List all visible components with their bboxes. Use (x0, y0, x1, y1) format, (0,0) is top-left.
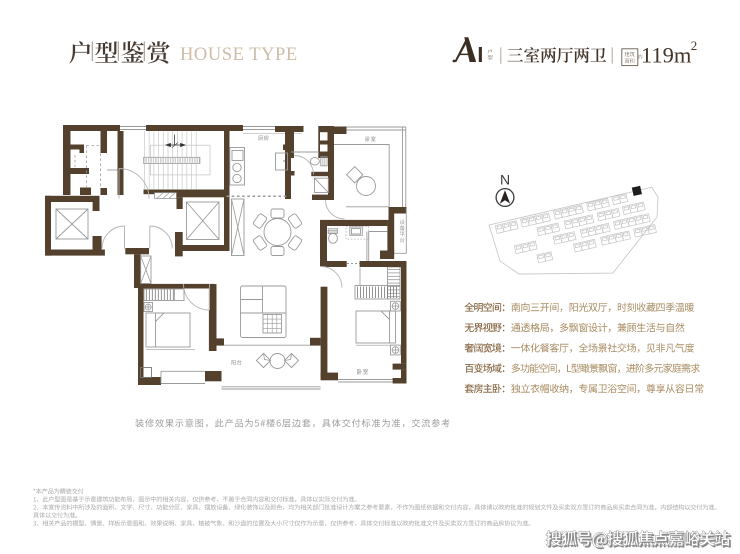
svg-text:2: 2 (691, 38, 698, 53)
svg-text:N: N (500, 172, 510, 188)
svg-text:HOUSE TYPE: HOUSE TYPE (180, 45, 298, 65)
svg-text:119m: 119m (641, 43, 692, 68)
